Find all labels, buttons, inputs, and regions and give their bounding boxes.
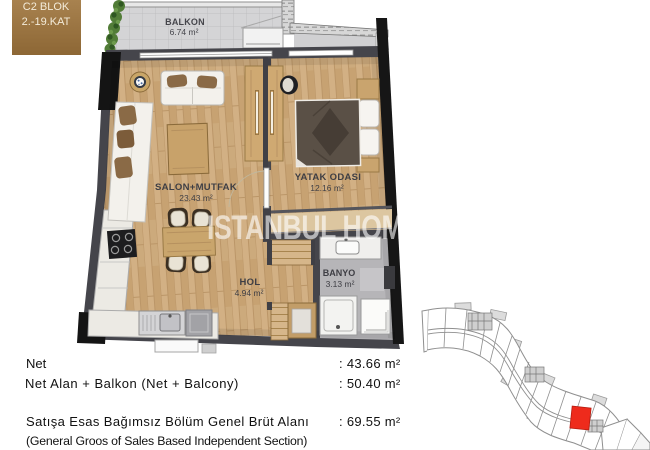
svg-text:SALON+MUTFAK: SALON+MUTFAK [155,182,237,193]
svg-text:: 69.55 m²: : 69.55 m² [339,414,401,429]
svg-text:Satışa Esas Bağımsız Bölüm Gen: Satışa Esas Bağımsız Bölüm Genel Brüt Al… [26,414,309,429]
svg-text:23.43 m²: 23.43 m² [179,193,213,203]
svg-text:BANYO: BANYO [323,268,356,278]
svg-text:6.74 m²: 6.74 m² [170,27,199,37]
svg-text:YATAK ODASI: YATAK ODASI [295,172,361,183]
svg-text:C2 BLOK: C2 BLOK [23,1,70,13]
svg-text:Net Alan + Balkon (Net + Balco: Net Alan + Balkon (Net + Balcony) [25,376,239,391]
svg-text:ISTANBUL HOMES: ISTANBUL HOMES [207,209,438,247]
svg-text:: 43.66 m²: : 43.66 m² [339,356,401,371]
svg-text:(General Groos of Sales Based: (General Groos of Sales Based Independen… [26,434,307,448]
svg-text:4.94 m²: 4.94 m² [235,288,264,298]
svg-text:BALKON: BALKON [165,17,205,27]
svg-text:12.16 m²: 12.16 m² [310,183,344,193]
svg-text:HOL: HOL [240,277,261,288]
svg-text:: 50.40 m²: : 50.40 m² [339,376,401,391]
svg-text:Net: Net [26,356,47,371]
svg-text:3.13 m²: 3.13 m² [326,279,355,289]
svg-text:2.-19.KAT: 2.-19.KAT [22,16,71,28]
